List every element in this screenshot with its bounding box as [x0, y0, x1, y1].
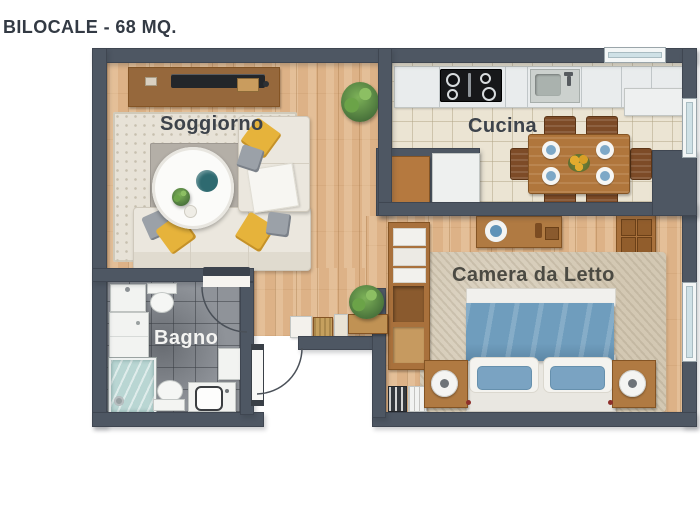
bed-pillow-blue	[550, 366, 605, 390]
potted-plant-living	[341, 82, 379, 122]
floorplan: Soggiorno Cucina	[0, 0, 700, 525]
room-label-camera: Camera da Letto	[452, 264, 615, 287]
slipper-dot	[466, 400, 471, 405]
window-kitchen-right	[682, 98, 697, 158]
faucet-icon	[125, 287, 130, 292]
lamp-icon	[431, 370, 458, 397]
counter-divider	[527, 67, 528, 107]
bathroom-sink	[110, 284, 146, 312]
bathroom-vanity	[109, 312, 149, 358]
bedroom-wardrobe	[388, 222, 430, 370]
bedroom-sideboard	[476, 216, 562, 248]
peninsula-cabinet	[432, 153, 480, 209]
wall-kitchen-right-block	[652, 150, 697, 216]
potted-plant-hall	[349, 285, 384, 319]
place-setting	[542, 167, 560, 185]
wall-living-kitchen	[378, 48, 392, 216]
kitchen-sink	[530, 69, 580, 103]
dresser-drawer	[621, 219, 636, 236]
centerpiece-flowers-icon	[568, 154, 590, 172]
open-shelf	[393, 286, 424, 322]
window-kitchen-top	[604, 47, 666, 63]
tray-icon	[196, 170, 218, 192]
window-glass	[686, 102, 693, 154]
room-label-cucina: Cucina	[468, 115, 537, 138]
shelf-compartment	[393, 327, 424, 363]
counter-divider	[505, 67, 506, 107]
cutting-board	[388, 156, 430, 208]
shower-shelf-box	[218, 348, 241, 380]
kitchen-corner-cabinet	[624, 88, 684, 116]
wall-left	[92, 48, 107, 427]
bottle-icon	[535, 223, 542, 238]
place-setting	[542, 141, 560, 159]
washer-knob	[225, 389, 229, 393]
counter-divider	[581, 67, 582, 107]
burner-icon	[447, 89, 458, 100]
burner-icon	[480, 73, 491, 84]
lamp-icon	[619, 370, 646, 397]
counter-divider	[621, 67, 622, 107]
console-knob	[263, 81, 269, 87]
towel-stack	[393, 248, 426, 266]
bed-pillow-blue	[477, 366, 532, 390]
entrance-door-leaf	[251, 344, 264, 406]
window-glass	[608, 52, 662, 58]
candle-icon	[184, 205, 197, 218]
utensil-icon	[468, 73, 471, 97]
hall-basket	[313, 317, 333, 338]
wall-kitchen-bedroom	[378, 202, 697, 216]
bathroom-door-threshold	[203, 276, 250, 287]
tv-console	[128, 67, 280, 107]
cooktop	[440, 69, 502, 102]
faucet-icon	[567, 76, 571, 86]
remote-item	[145, 77, 157, 86]
dresser-drawer	[637, 219, 652, 236]
room-label-bagno: Bagno	[154, 327, 218, 350]
place-setting	[596, 167, 614, 185]
console-box	[237, 78, 259, 92]
window-bedroom-right	[682, 282, 697, 362]
hall-storage-box	[290, 316, 312, 338]
washing-machine	[188, 382, 236, 412]
hall-candle-jar	[334, 314, 348, 338]
room-label-soggiorno: Soggiorno	[160, 113, 264, 136]
table-plant-icon	[172, 188, 190, 206]
burner-icon	[482, 87, 496, 101]
shower	[109, 358, 156, 414]
towel-stack	[393, 268, 426, 283]
wall-bathroom-bottom	[92, 412, 264, 427]
bathroom-door-leaf	[203, 267, 250, 276]
burner-icon	[446, 73, 460, 87]
dining-chair	[630, 148, 652, 180]
towel-stack	[393, 228, 426, 246]
place-setting	[596, 141, 614, 159]
handle-dot	[136, 321, 140, 325]
window-glass	[686, 286, 693, 358]
toilet-tank	[153, 399, 185, 411]
storage-unit-dark	[388, 386, 407, 412]
washer-door-icon	[195, 386, 223, 411]
box-icon	[545, 227, 559, 240]
pillow	[266, 212, 292, 238]
slipper-dot	[608, 400, 613, 405]
blue-plate-icon	[485, 220, 507, 242]
floor-bedroom-passage	[366, 216, 386, 292]
showerhead-icon	[114, 396, 124, 406]
wall-bedroom-bottom	[372, 412, 697, 427]
toilet-bowl	[150, 292, 174, 313]
sink-bowl	[535, 74, 561, 96]
bed-duvet	[466, 303, 614, 361]
